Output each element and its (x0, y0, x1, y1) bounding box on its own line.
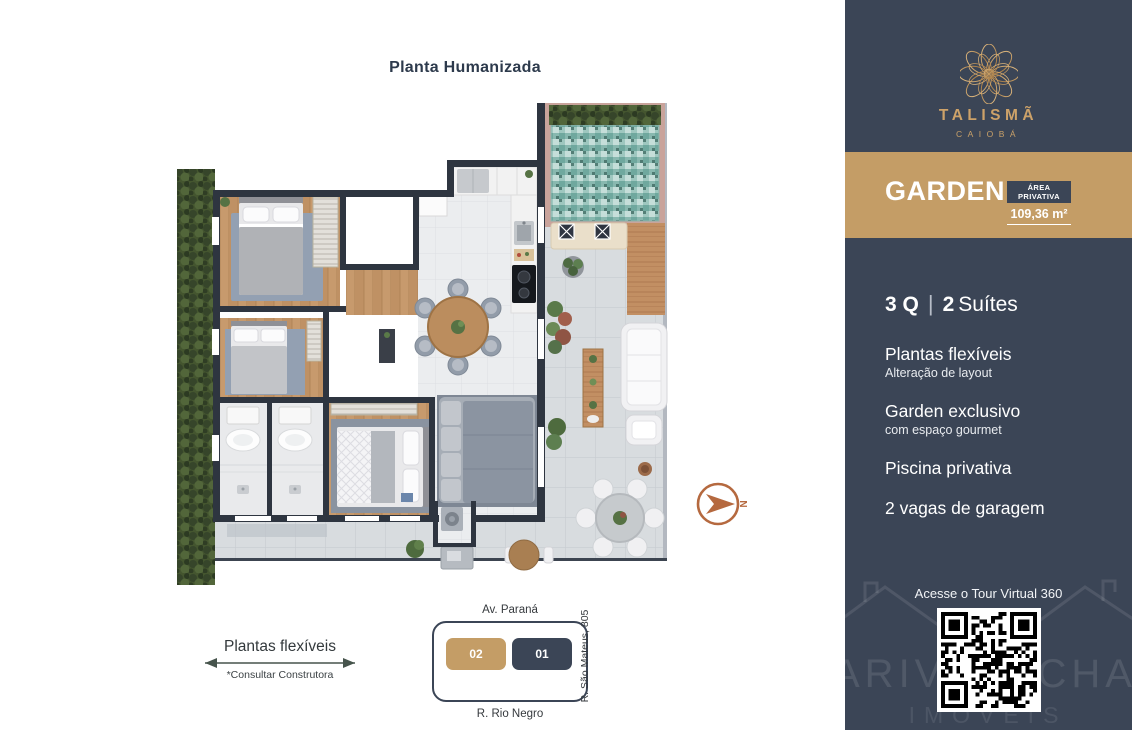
spec-item: Piscina privativa (885, 458, 1105, 479)
brochure-page: Planta Humanizada (0, 0, 1132, 730)
spec-item: 2 vagas de garagem (885, 498, 1105, 519)
block-outline: 02 01 (432, 621, 588, 702)
flex-plans-label: Plantas flexíveis (190, 638, 370, 656)
unit-01-block: 01 (512, 638, 572, 670)
spec-title: Plantas flexíveis (885, 344, 1105, 365)
flex-plans-note: Plantas flexíveis *Consultar Construtora (190, 638, 370, 681)
brand-name: TALISMÃ (845, 107, 1132, 125)
spec-title: Piscina privativa (885, 458, 1105, 479)
spec-item: Garden exclusivo com espaço gourmet (885, 401, 1105, 439)
spec-title: Garden exclusivo (885, 401, 1105, 422)
compass-icon: N (693, 476, 749, 532)
laundry-vestibule (441, 507, 463, 531)
sidebar: ARIVÂ OCHA IMÓVEIS (845, 0, 1132, 730)
spec-item: Plantas flexíveis Alteração de layout (885, 344, 1105, 382)
street-label-bottom: R. Rio Negro (432, 708, 588, 720)
bedroom-3 (331, 403, 429, 513)
unit-type-title: GARDEN (885, 176, 1005, 207)
spec-list: 3 Q|2Suítes Plantas flexíveis Alteração … (885, 291, 1105, 538)
unit-02-block: 02 (446, 638, 506, 670)
spec-suites-count: 2 (943, 293, 955, 316)
talisma-logo-icon (960, 44, 1018, 104)
area-badge: ÁREA PRIVATIVA 109,36 m² (1007, 181, 1071, 225)
garden-hedge (177, 169, 215, 585)
spec-q: 3 Q (885, 293, 919, 316)
page-title: Planta Humanizada (215, 59, 715, 77)
flex-plans-disclaimer: *Consultar Construtora (190, 669, 370, 681)
brand-block: TALISMÃ CAIOBÁ (845, 0, 1132, 139)
spec-suites-label: Suítes (958, 293, 1018, 316)
tour-label: Acesse o Tour Virtual 360 (845, 586, 1132, 601)
brand-city: CAIOBÁ (845, 129, 1132, 139)
area-label: ÁREA PRIVATIVA (1007, 181, 1071, 203)
garden-banner: GARDEN ÁREA PRIVATIVA 109,36 m² (845, 152, 1132, 238)
floor-plan (175, 97, 677, 587)
spec-title: 2 vagas de garagem (885, 498, 1105, 519)
street-label-top: Av. Paraná (432, 604, 588, 616)
street-label-right: R. São Mateus, 805 (579, 591, 591, 721)
pool (545, 103, 665, 227)
double-arrow-icon (195, 657, 365, 669)
area-value: 109,36 m² (1007, 204, 1071, 225)
qr-code (937, 608, 1041, 712)
spec-separator: | (919, 291, 943, 316)
spec-subtitle: com espaço gourmet (885, 422, 1105, 439)
spec-subtitle: Alteração de layout (885, 365, 1105, 382)
spec-rooms: 3 Q|2Suítes (885, 291, 1105, 317)
compass-north-label: N (737, 500, 748, 507)
